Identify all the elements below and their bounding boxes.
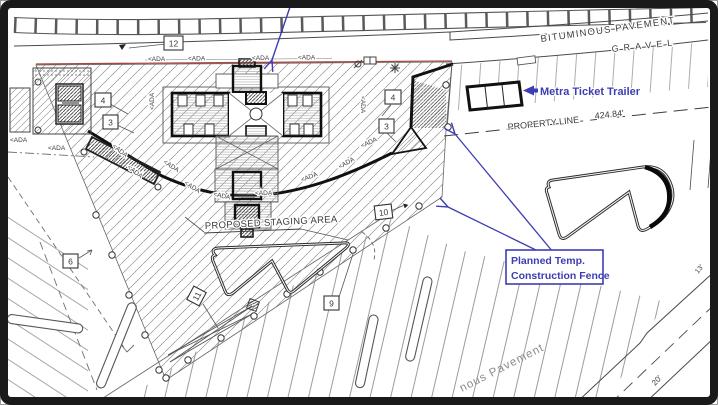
ada-label: <ADA — [148, 56, 166, 63]
ada-label: <ADA — [188, 56, 206, 63]
svg-text:9: 9 — [329, 299, 334, 309]
svg-text:6: 6 — [68, 257, 73, 267]
ada-label: <ADA — [10, 137, 28, 144]
ada-label: <ADA — [298, 55, 316, 62]
left-arrow-tail — [533, 89, 538, 93]
center-bay — [229, 92, 283, 136]
ada-label: <ADA — [149, 92, 156, 110]
svg-text:10: 10 — [378, 207, 389, 218]
ada-label: <ADA — [252, 55, 270, 62]
planned-fence-line1: Planned Temp. — [511, 255, 585, 267]
svg-text:3: 3 — [108, 118, 113, 128]
metra-trailer-callout: Metra Ticket Trailer — [523, 86, 641, 99]
site-plan-figure: 20' 13' nous Pavement BITUMINOUS PAVEMEN… — [0, 0, 718, 405]
ada-label: <ADA — [48, 145, 66, 152]
planned-fence-line2: Construction Fence — [511, 270, 610, 282]
metra-ticket-trailer-label: Metra Ticket Trailer — [540, 86, 641, 98]
svg-text:4: 4 — [391, 93, 396, 103]
svg-text:12: 12 — [169, 39, 179, 49]
svg-text:4: 4 — [101, 96, 106, 106]
site-plan-drawing: 20' 13' nous Pavement BITUMINOUS PAVEMEN… — [0, 0, 718, 405]
ada-label: <ADA — [359, 96, 366, 114]
ada-label: <ADA — [255, 190, 273, 197]
svg-text:3: 3 — [384, 122, 389, 132]
metra-ticket-trailer — [467, 82, 522, 110]
